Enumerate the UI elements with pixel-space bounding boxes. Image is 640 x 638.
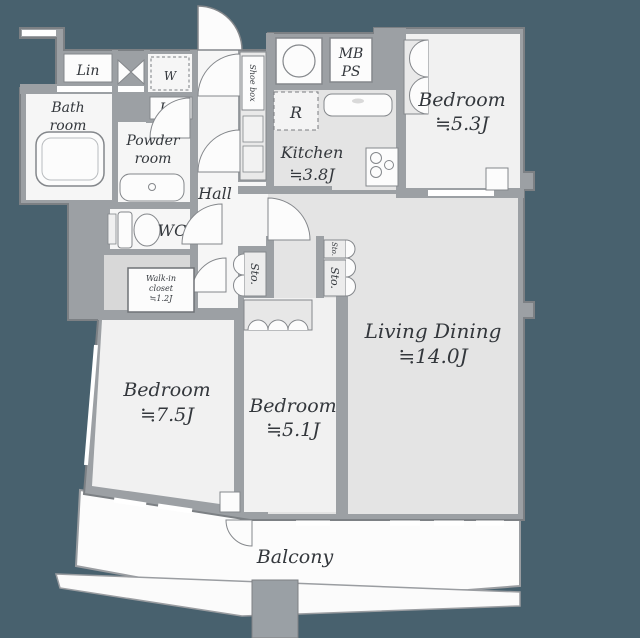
bedroom-a-sliding-door [428,190,494,196]
living-dining-label: Living Dining [364,319,502,343]
storage-living-label: Sto. [328,267,341,289]
bedroom-c-label: Bedroom [248,395,336,417]
hall-label: Hall [197,184,232,203]
wic-label-1: Walk-in [146,274,176,283]
sink-faucet [352,99,364,104]
wic-label-2: closet [149,284,174,293]
vanity-sink [120,174,184,201]
storage-living-doors [346,240,356,296]
shoe-box-label: Shoe box [248,64,257,102]
walk-in-closet: Walk-in closet ≒1.2J [128,268,194,312]
kitchen-area: ≒3.8J [289,165,336,184]
bedroom-c-closet-doors [248,320,308,330]
shoe-box-column: Shoe box [240,52,266,180]
bedroom-b-area: ≒7.5J [140,404,195,426]
bedroom-a-pillar [486,168,508,190]
storage-living-small-label: Sto. [330,242,338,256]
toilet-bowl [134,214,160,246]
bathroom-label-1: Bath [50,100,84,116]
refrigerator-label: R [289,103,302,122]
wc-shelf [108,214,116,244]
bedroom-b-label: Bedroom [122,379,210,401]
linen-top-label: Lin [76,63,100,79]
kitchen-sink [324,94,392,116]
bedroom-a-area: ≒5.3J [435,113,490,135]
bedroom-b-step [220,492,240,512]
storage-hall-label: Sto. [248,263,261,285]
powder-label-2: room [135,151,172,167]
bedroom-c-area: ≒5.1J [266,419,321,441]
living-dining-area: ≒14.0J [398,344,468,368]
window-top-left [22,30,56,36]
floor-plan: Balcony [0,0,640,638]
meter-box-label-1: MB [338,46,364,62]
balcony-pillar [252,580,298,638]
washer-label: W [164,69,178,83]
toilet-tank [118,212,132,248]
bathroom-label-2: room [50,118,87,134]
kitchen-label: Kitchen [280,143,344,162]
wic-label-3: ≒1.2J [150,294,173,303]
balcony-label: Balcony [256,546,334,568]
meter-box-label-2: PS [340,64,360,80]
bathtub [36,132,104,186]
powder-label-1: Powder [125,133,181,149]
floor-plan-canvas: Balcony [0,0,640,638]
bedroom-a-label: Bedroom [417,89,505,111]
